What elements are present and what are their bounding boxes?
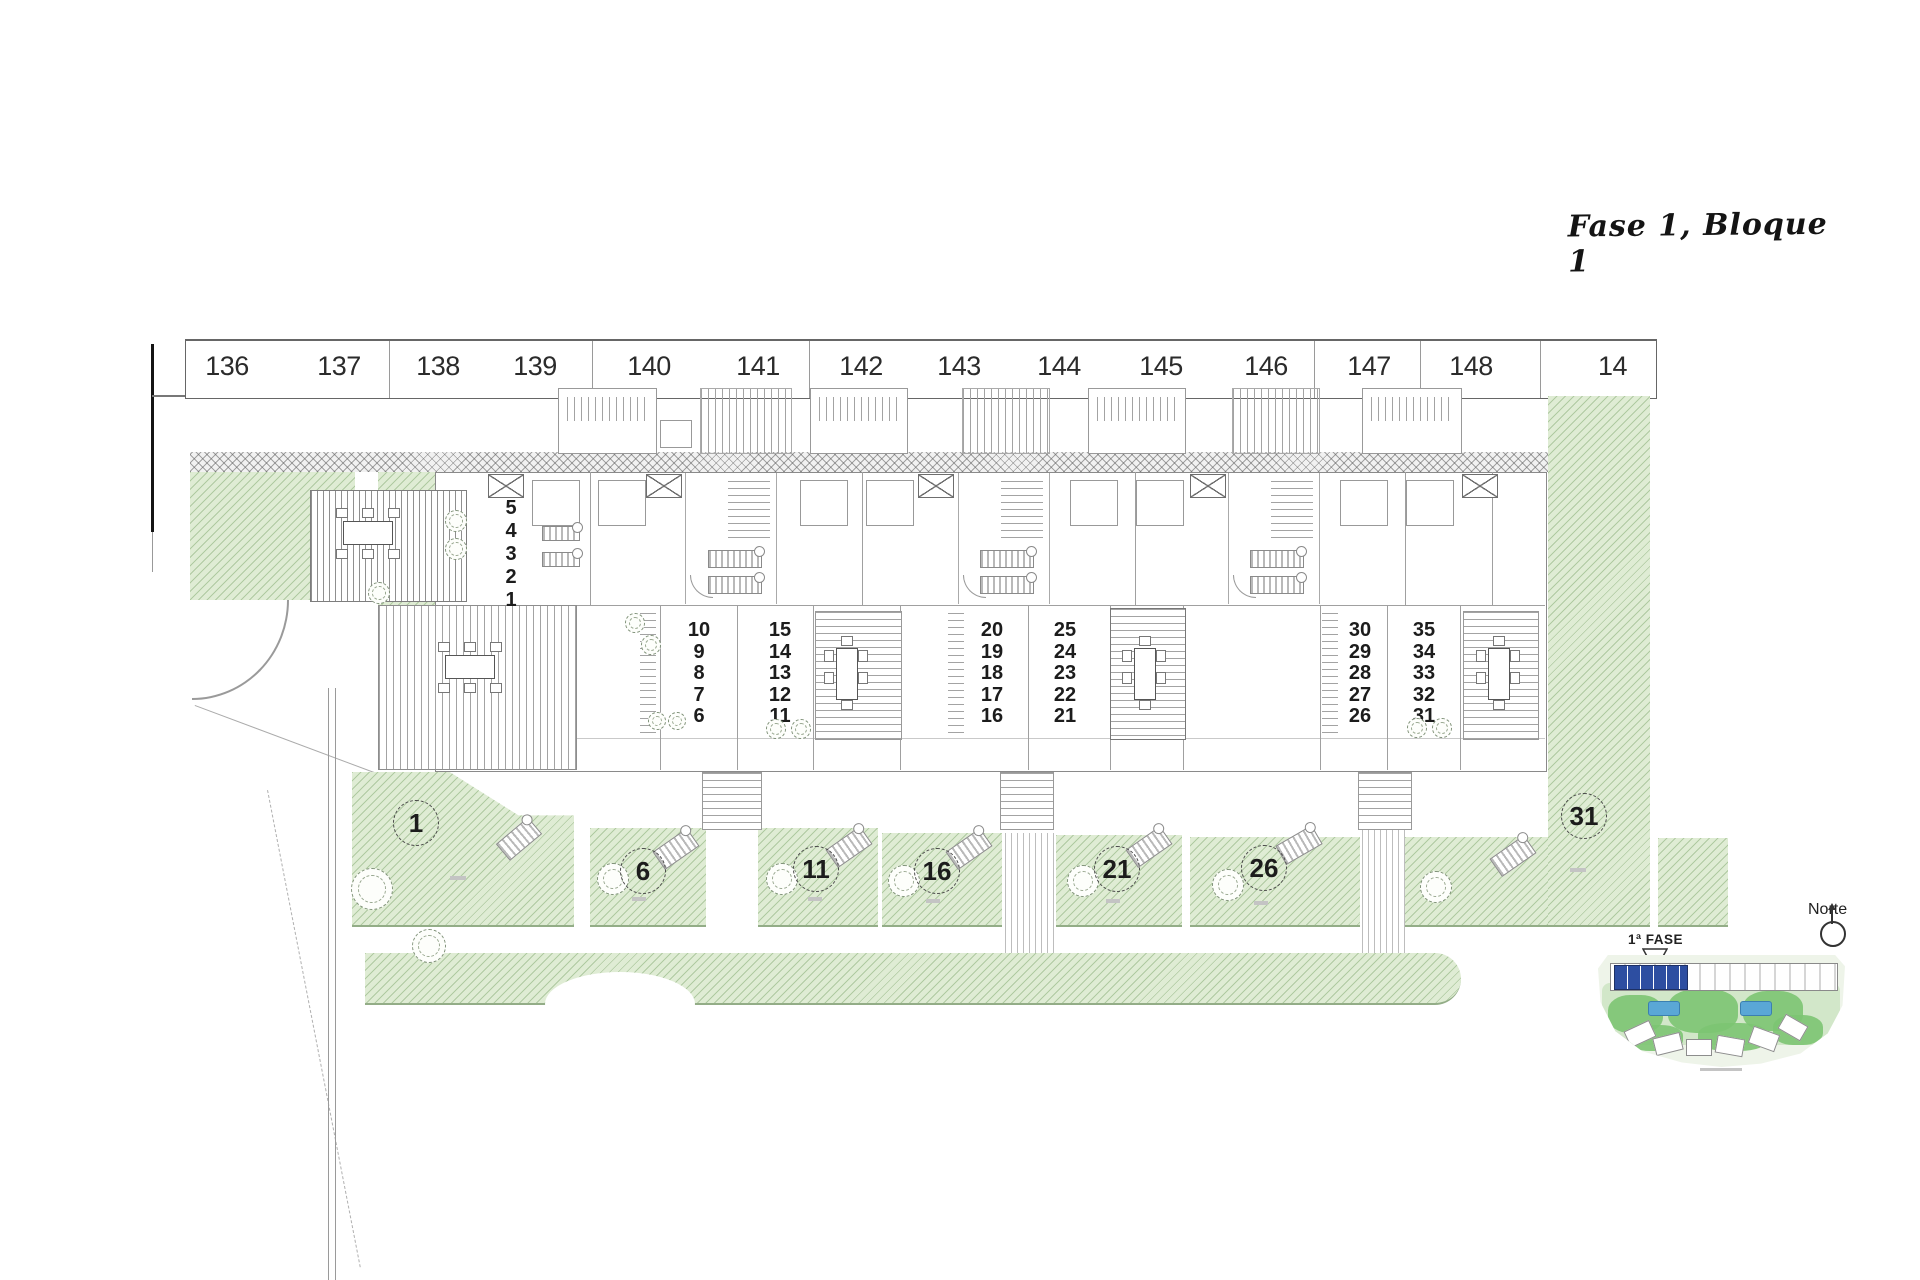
entry-stairs — [1000, 772, 1054, 830]
plot-number: 26 — [1250, 853, 1279, 884]
lounger-icon — [1250, 576, 1304, 594]
entry-stairs — [702, 772, 762, 830]
round-table-icon — [668, 712, 686, 730]
kitchen-counter — [1001, 481, 1043, 543]
floor-divider — [435, 605, 1545, 606]
parking-space-label: 14 — [1598, 351, 1657, 382]
wall — [813, 605, 814, 770]
north-compass-arrowhead — [1828, 903, 1836, 910]
boundary-double-line — [328, 688, 336, 1280]
unit-number: 23 — [1043, 663, 1087, 685]
round-table-icon — [766, 719, 786, 739]
parking-space-label: 140 — [617, 351, 681, 382]
unit-stack-16-20: 20 19 18 17 16 — [970, 620, 1014, 728]
bed-symbol — [1340, 480, 1388, 526]
deck-column — [1322, 613, 1338, 735]
minimap-villa — [1715, 1035, 1746, 1058]
unit-number: 25 — [1043, 620, 1087, 642]
wall — [660, 605, 661, 770]
lounger-icon — [1250, 550, 1304, 568]
tree-icon — [412, 929, 446, 963]
minimap-pool — [1648, 1001, 1680, 1016]
parking-space-label: 141 — [726, 351, 790, 382]
tree-icon — [625, 613, 645, 633]
plot-number: 21 — [1103, 854, 1132, 885]
stair-treads — [819, 397, 899, 421]
round-table-icon — [648, 712, 666, 730]
lounger-icon — [708, 576, 762, 594]
skylight-xbox — [1462, 474, 1498, 498]
plot-number: 1 — [409, 808, 423, 839]
tree-icon — [1420, 871, 1452, 903]
skylight-xbox — [1190, 474, 1226, 498]
tree-icon — [641, 635, 661, 655]
unit-number: 18 — [970, 663, 1014, 685]
unit-stack-1-5: 5 4 3 2 1 — [489, 497, 533, 612]
unit-number: 19 — [970, 642, 1014, 664]
wall — [1460, 605, 1461, 770]
round-table-icon — [1407, 718, 1427, 738]
area-label-smudge — [808, 897, 822, 901]
wall — [1320, 605, 1321, 770]
plot-circle-31: 31 — [1561, 793, 1607, 839]
plot-number: 16 — [923, 856, 952, 887]
unit-number: 1 — [489, 589, 533, 612]
parking-divider — [1540, 341, 1541, 398]
driveway-curb-arc — [192, 600, 289, 700]
tree-icon — [1212, 869, 1244, 901]
plot-circle-21: 21 — [1094, 846, 1140, 892]
unit-number: 2 — [489, 566, 533, 589]
roof-stair-block-3 — [1088, 388, 1186, 454]
roof-pergola-3 — [1232, 388, 1320, 454]
hedge-strip-bottom — [365, 953, 1461, 1005]
unit-number: 27 — [1338, 685, 1382, 707]
plan-title: Fase 1, Bloque 1 — [1568, 207, 1849, 280]
parking-space-label: 146 — [1234, 351, 1298, 382]
garden-patch-far-right — [1658, 838, 1728, 927]
dining-table — [822, 638, 870, 708]
unit-number: 16 — [970, 706, 1014, 728]
bed-symbol — [1070, 480, 1118, 526]
unit-number: 33 — [1402, 663, 1446, 685]
lounger-icon — [980, 550, 1034, 568]
unit-number: 24 — [1043, 642, 1087, 664]
lounger-icon — [542, 526, 580, 541]
roof-stair-block-2 — [810, 388, 908, 454]
parking-space-label: 139 — [503, 351, 567, 382]
bed-symbol — [532, 480, 580, 526]
area-label-smudge — [1106, 899, 1120, 903]
unit-stack-6-10: 10 9 8 7 6 — [677, 620, 721, 728]
roof-box — [660, 420, 692, 448]
lounger-icon — [708, 550, 762, 568]
lounger-icon — [542, 552, 580, 567]
unit-number: 12 — [758, 685, 802, 707]
plot-circle-26: 26 — [1241, 845, 1287, 891]
bed-symbol — [800, 480, 848, 526]
tree-icon — [368, 582, 390, 604]
stair-treads — [1371, 397, 1453, 421]
plot-circle-11: 11 — [793, 846, 839, 892]
hedge-strip-cut — [545, 972, 695, 1036]
roof-stair-block-1 — [558, 388, 657, 454]
plot-number: 11 — [802, 854, 830, 885]
unit-number: 10 — [677, 620, 721, 642]
unit-number: 29 — [1338, 642, 1382, 664]
pavement-band — [190, 452, 1548, 472]
minimap-villa — [1686, 1039, 1712, 1056]
deck-column — [948, 613, 964, 735]
minimap-pool — [1740, 1001, 1772, 1016]
minimap-caption-smudge — [1700, 1068, 1742, 1071]
wall — [862, 472, 863, 605]
unit-number: 34 — [1402, 642, 1446, 664]
kitchen-counter — [1271, 481, 1313, 543]
parking-space-label: 142 — [829, 351, 893, 382]
parking-space-label: 147 — [1337, 351, 1401, 382]
unit-number: 21 — [1043, 706, 1087, 728]
area-label-smudge — [1570, 868, 1586, 872]
site-plan-canvas: Fase 1, Bloque 1 136 137 138 139 140 141… — [0, 0, 1920, 1280]
parking-space-label: 145 — [1129, 351, 1193, 382]
plot-number: 6 — [636, 856, 650, 887]
roof-stair-block-4 — [1362, 388, 1462, 454]
stair-treads — [1097, 397, 1177, 421]
minimap-phase1-block — [1614, 965, 1688, 990]
unit-number: 15 — [758, 620, 802, 642]
north-compass-icon — [1820, 921, 1846, 947]
unit-number: 7 — [677, 685, 721, 707]
bed-symbol — [1406, 480, 1454, 526]
plot-circle-6: 6 — [620, 848, 666, 894]
unit-number: 5 — [489, 497, 533, 520]
unit-number: 3 — [489, 543, 533, 566]
parking-space-label: 148 — [1439, 351, 1503, 382]
plot-circle-1: 1 — [393, 800, 439, 846]
unit-number: 22 — [1043, 685, 1087, 707]
boundary-line-left-black — [151, 344, 154, 532]
area-label-smudge — [1254, 901, 1268, 905]
unit-number: 28 — [1338, 663, 1382, 685]
unit-number: 26 — [1338, 706, 1382, 728]
tree-icon — [445, 510, 467, 532]
dining-table — [1474, 638, 1522, 708]
plot-number: 31 — [1570, 801, 1599, 832]
unit-number: 20 — [970, 620, 1014, 642]
bed-symbol — [866, 480, 914, 526]
wall — [590, 472, 591, 605]
minimap-base — [1598, 955, 1845, 1067]
area-label-smudge — [450, 876, 466, 880]
parking-space-label: 137 — [307, 351, 371, 382]
wall — [1387, 605, 1388, 770]
boundary-dashed-line — [267, 790, 361, 1267]
bed-symbol — [598, 480, 646, 526]
wall — [1028, 605, 1029, 770]
unit-number: 35 — [1402, 620, 1446, 642]
unit-number: 14 — [758, 642, 802, 664]
unit-number: 9 — [677, 642, 721, 664]
boundary-line-left-gray — [152, 532, 153, 572]
unit-stack-31-35: 35 34 33 32 31 — [1402, 620, 1446, 728]
parking-space-label: 143 — [927, 351, 991, 382]
skylight-xbox — [646, 474, 682, 498]
parking-space-label: 136 — [195, 351, 259, 382]
walkway-striped-2 — [1362, 828, 1407, 953]
unit-stack-26-30: 30 29 28 27 26 — [1338, 620, 1382, 728]
entry-stairs — [1358, 772, 1412, 830]
tree-icon — [445, 538, 467, 560]
area-label-smudge — [632, 897, 646, 901]
unit-number: 8 — [677, 663, 721, 685]
dining-table — [330, 506, 406, 560]
unit-number: 17 — [970, 685, 1014, 707]
parking-space-label: 144 — [1027, 351, 1091, 382]
unit-number: 4 — [489, 520, 533, 543]
lounger-icon — [980, 576, 1034, 594]
boundary-line-left-horizontal — [152, 395, 185, 397]
stair-treads — [567, 397, 648, 421]
plot-circle-16: 16 — [914, 848, 960, 894]
dining-table — [432, 640, 508, 694]
round-table-icon — [1432, 718, 1452, 738]
bed-symbol — [1136, 480, 1184, 526]
area-label-smudge — [926, 899, 940, 903]
walkway-striped-1 — [1005, 833, 1055, 953]
unit-number: 32 — [1402, 685, 1446, 707]
kitchen-counter — [728, 481, 770, 543]
parking-divider — [389, 341, 390, 398]
unit-stack-21-25: 25 24 23 22 21 — [1043, 620, 1087, 728]
roof-pergola-1 — [700, 388, 792, 454]
unit-number: 13 — [758, 663, 802, 685]
unit-stack-11-15: 15 14 13 12 11 — [758, 620, 802, 728]
unit-number: 30 — [1338, 620, 1382, 642]
skylight-xbox — [488, 474, 524, 498]
north-compass-needle — [1831, 909, 1833, 924]
roof-pergola-2 — [962, 388, 1050, 454]
dining-table — [1120, 638, 1168, 708]
parking-space-label: 138 — [406, 351, 470, 382]
round-table-icon — [791, 719, 811, 739]
phase-label: 1ª FASE — [1628, 932, 1683, 947]
wall — [737, 605, 738, 770]
minimap — [1598, 955, 1845, 1067]
garden-strip-right — [1548, 396, 1650, 927]
tree-icon — [351, 868, 393, 910]
porch-line — [435, 738, 1545, 739]
skylight-xbox — [918, 474, 954, 498]
